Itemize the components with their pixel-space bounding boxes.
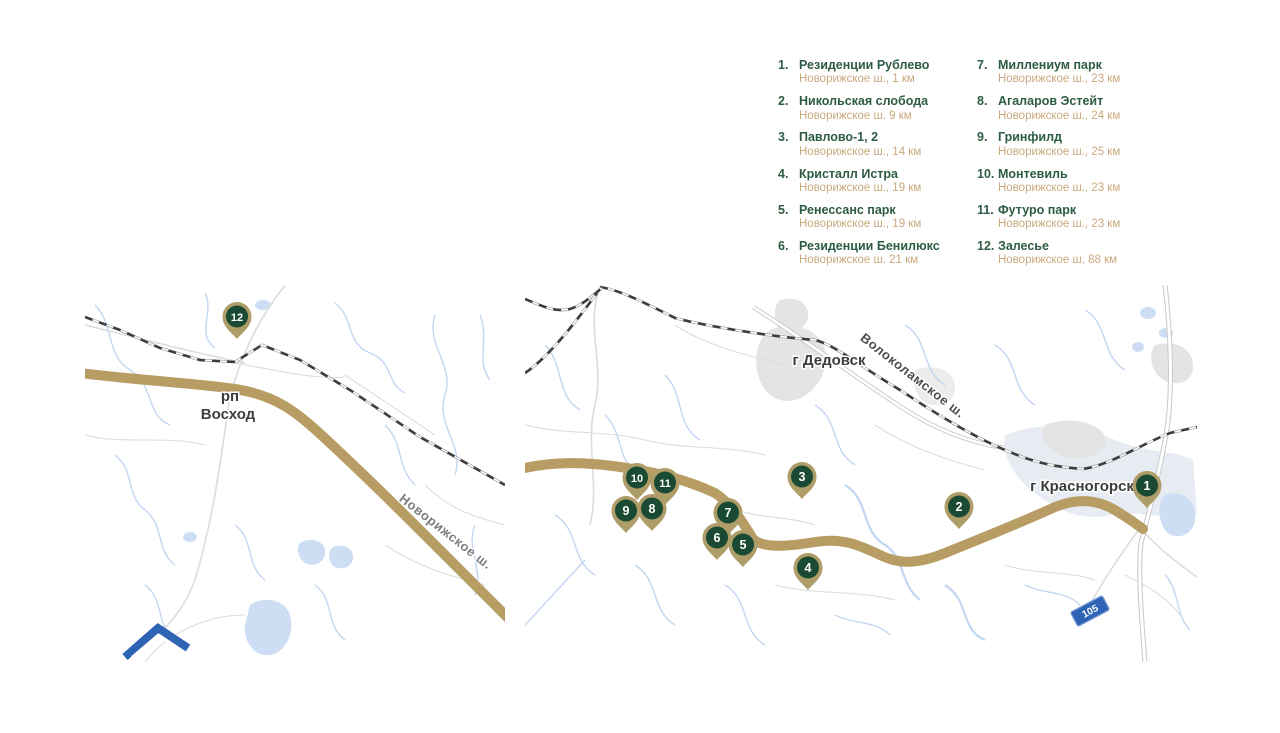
map-marker-8[interactable]: 8 [638,494,667,531]
legend-item: 7.Миллениум паркНоворижское ш., 23 км [977,58,1172,87]
legend-item-distance: Новорижское ш., 19 км [799,182,921,196]
markers-layer: 12 [223,302,252,339]
legend-item: 8.Агаларов ЭстейтНоворижское ш., 24 км [977,94,1172,123]
legend-item-distance: Новорижское ш., 25 км [998,146,1120,160]
legend-item: 12.ЗалесьеНоворижское ш, 88 км [977,239,1172,268]
legend-item: 4.Кристалл ИстраНоворижское ш., 19 км [778,167,973,196]
legend-item-distance: Новорижское ш., 23 км [998,73,1120,87]
map-marker-number: 10 [631,473,643,485]
legend-item-name: Павлово-1, 2 [799,130,921,144]
map-marker-number: 8 [649,502,656,516]
map-marker-number: 9 [623,504,630,518]
legend-item-name: Ренессанс парк [799,203,921,217]
legend-item-number: 3. [778,130,799,159]
legend-item: 6.Резиденции БенилюксНоворижское ш. 21 к… [778,239,973,268]
legend-item-distance: Новорижское ш., 23 км [998,182,1120,196]
legend-item-number: 8. [977,94,998,123]
legend-item-number: 9. [977,130,998,159]
legend-item-number: 2. [778,94,799,123]
map-marker-number: 5 [740,538,747,552]
legend-item-distance: Новорижское ш., 14 км [799,146,921,160]
novorizhskoye-highway [85,373,505,620]
map-marker-number: 4 [805,561,812,575]
legend-item-number: 1. [778,58,799,87]
legend-item-name: Залесье [998,239,1117,253]
legend-item-name: Футуро парк [998,203,1120,217]
legend-item-number: 6. [778,239,799,268]
city-label-krasnogorsk: г Красногорск [1030,478,1134,495]
legend-item-number: 4. [778,167,799,196]
legend-item-number: 11. [977,203,998,232]
legend-item-distance: Новорижское ш, 88 км [998,254,1117,268]
map-marker-number: 2 [956,500,963,514]
railway-layer [85,317,505,485]
legend-item-name: Никольская слобода [799,94,928,108]
map-marker-4[interactable]: 4 [794,553,823,590]
map-panel-voskhod: рп Восход Новорижское ш. 12 [85,285,505,662]
map-marker-number: 1 [1144,479,1151,493]
map-marker-12[interactable]: 12 [223,302,252,339]
map-marker-6[interactable]: 6 [703,523,732,560]
city-label-dedovsk: г Дедовск [792,352,866,369]
legend-item-name: Кристалл Истра [799,167,921,181]
map-marker-10[interactable]: 10 [623,463,652,500]
map-marker-3[interactable]: 3 [788,462,817,499]
map-panel-krasnogorsk: г Дедовск г Красногорск Волоколамское ш.… [525,285,1197,662]
map-marker-number: 6 [714,531,721,545]
legend-item-name: Гринфилд [998,130,1120,144]
legend-item: 10.МонтевильНоворижское ш., 23 км [977,167,1172,196]
legend-item-distance: Новорижское ш., 23 км [998,218,1120,232]
map-marker-number: 3 [799,470,806,484]
legend-item-name: Миллениум парк [998,58,1120,72]
legend-item-number: 5. [778,203,799,232]
legend-item-distance: Новорижское ш. 21 км [799,254,940,268]
map-marker-5[interactable]: 5 [729,530,758,567]
legend-item-number: 10. [977,167,998,196]
legend-item-distance: Новорижское ш. 9 км [799,110,928,124]
legend-item: 1.Резиденции РублевоНоворижское ш., 1 км [778,58,973,87]
map-marker-2[interactable]: 2 [945,492,974,529]
legend-item-distance: Новорижское ш., 24 км [998,110,1120,124]
legend-column-right: 7.Миллениум паркНоворижское ш., 23 км8.А… [977,58,1172,275]
map-marker-number: 12 [231,312,243,324]
legend-column-left: 1.Резиденции РублевоНоворижское ш., 1 км… [778,58,973,275]
legend-item: 5.Ренессанс паркНоворижское ш., 19 км [778,203,973,232]
legend-item-distance: Новорижское ш., 1 км [799,73,929,87]
legend-item-distance: Новорижское ш., 19 км [799,218,921,232]
settlement-label: Восход [201,406,256,423]
legend-item-number: 7. [977,58,998,87]
legend-item-name: Резиденции Бенилюкс [799,239,940,253]
map-marker-number: 7 [725,506,732,520]
legend-item-name: Агаларов Эстейт [998,94,1120,108]
legend-item-number: 12. [977,239,998,268]
settlement-prefix-label: рп [221,388,239,405]
legend-item: 3.Павлово-1, 2Новорижское ш., 14 км [778,130,973,159]
legend-item-name: Монтевиль [998,167,1120,181]
legend-item: 11.Футуро паркНоворижское ш., 23 км [977,203,1172,232]
map-marker-9[interactable]: 9 [612,496,641,533]
water-layer [95,293,490,655]
map-marker-number: 11 [659,478,671,490]
route-arrow-icon [125,628,188,657]
legend-item-name: Резиденции Рублево [799,58,929,72]
legend-item: 9.ГринфилдНоворижское ш., 25 км [977,130,1172,159]
legend-item: 2.Никольская слободаНоворижское ш. 9 км [778,94,973,123]
route-shield-105: 105 [1070,595,1109,626]
